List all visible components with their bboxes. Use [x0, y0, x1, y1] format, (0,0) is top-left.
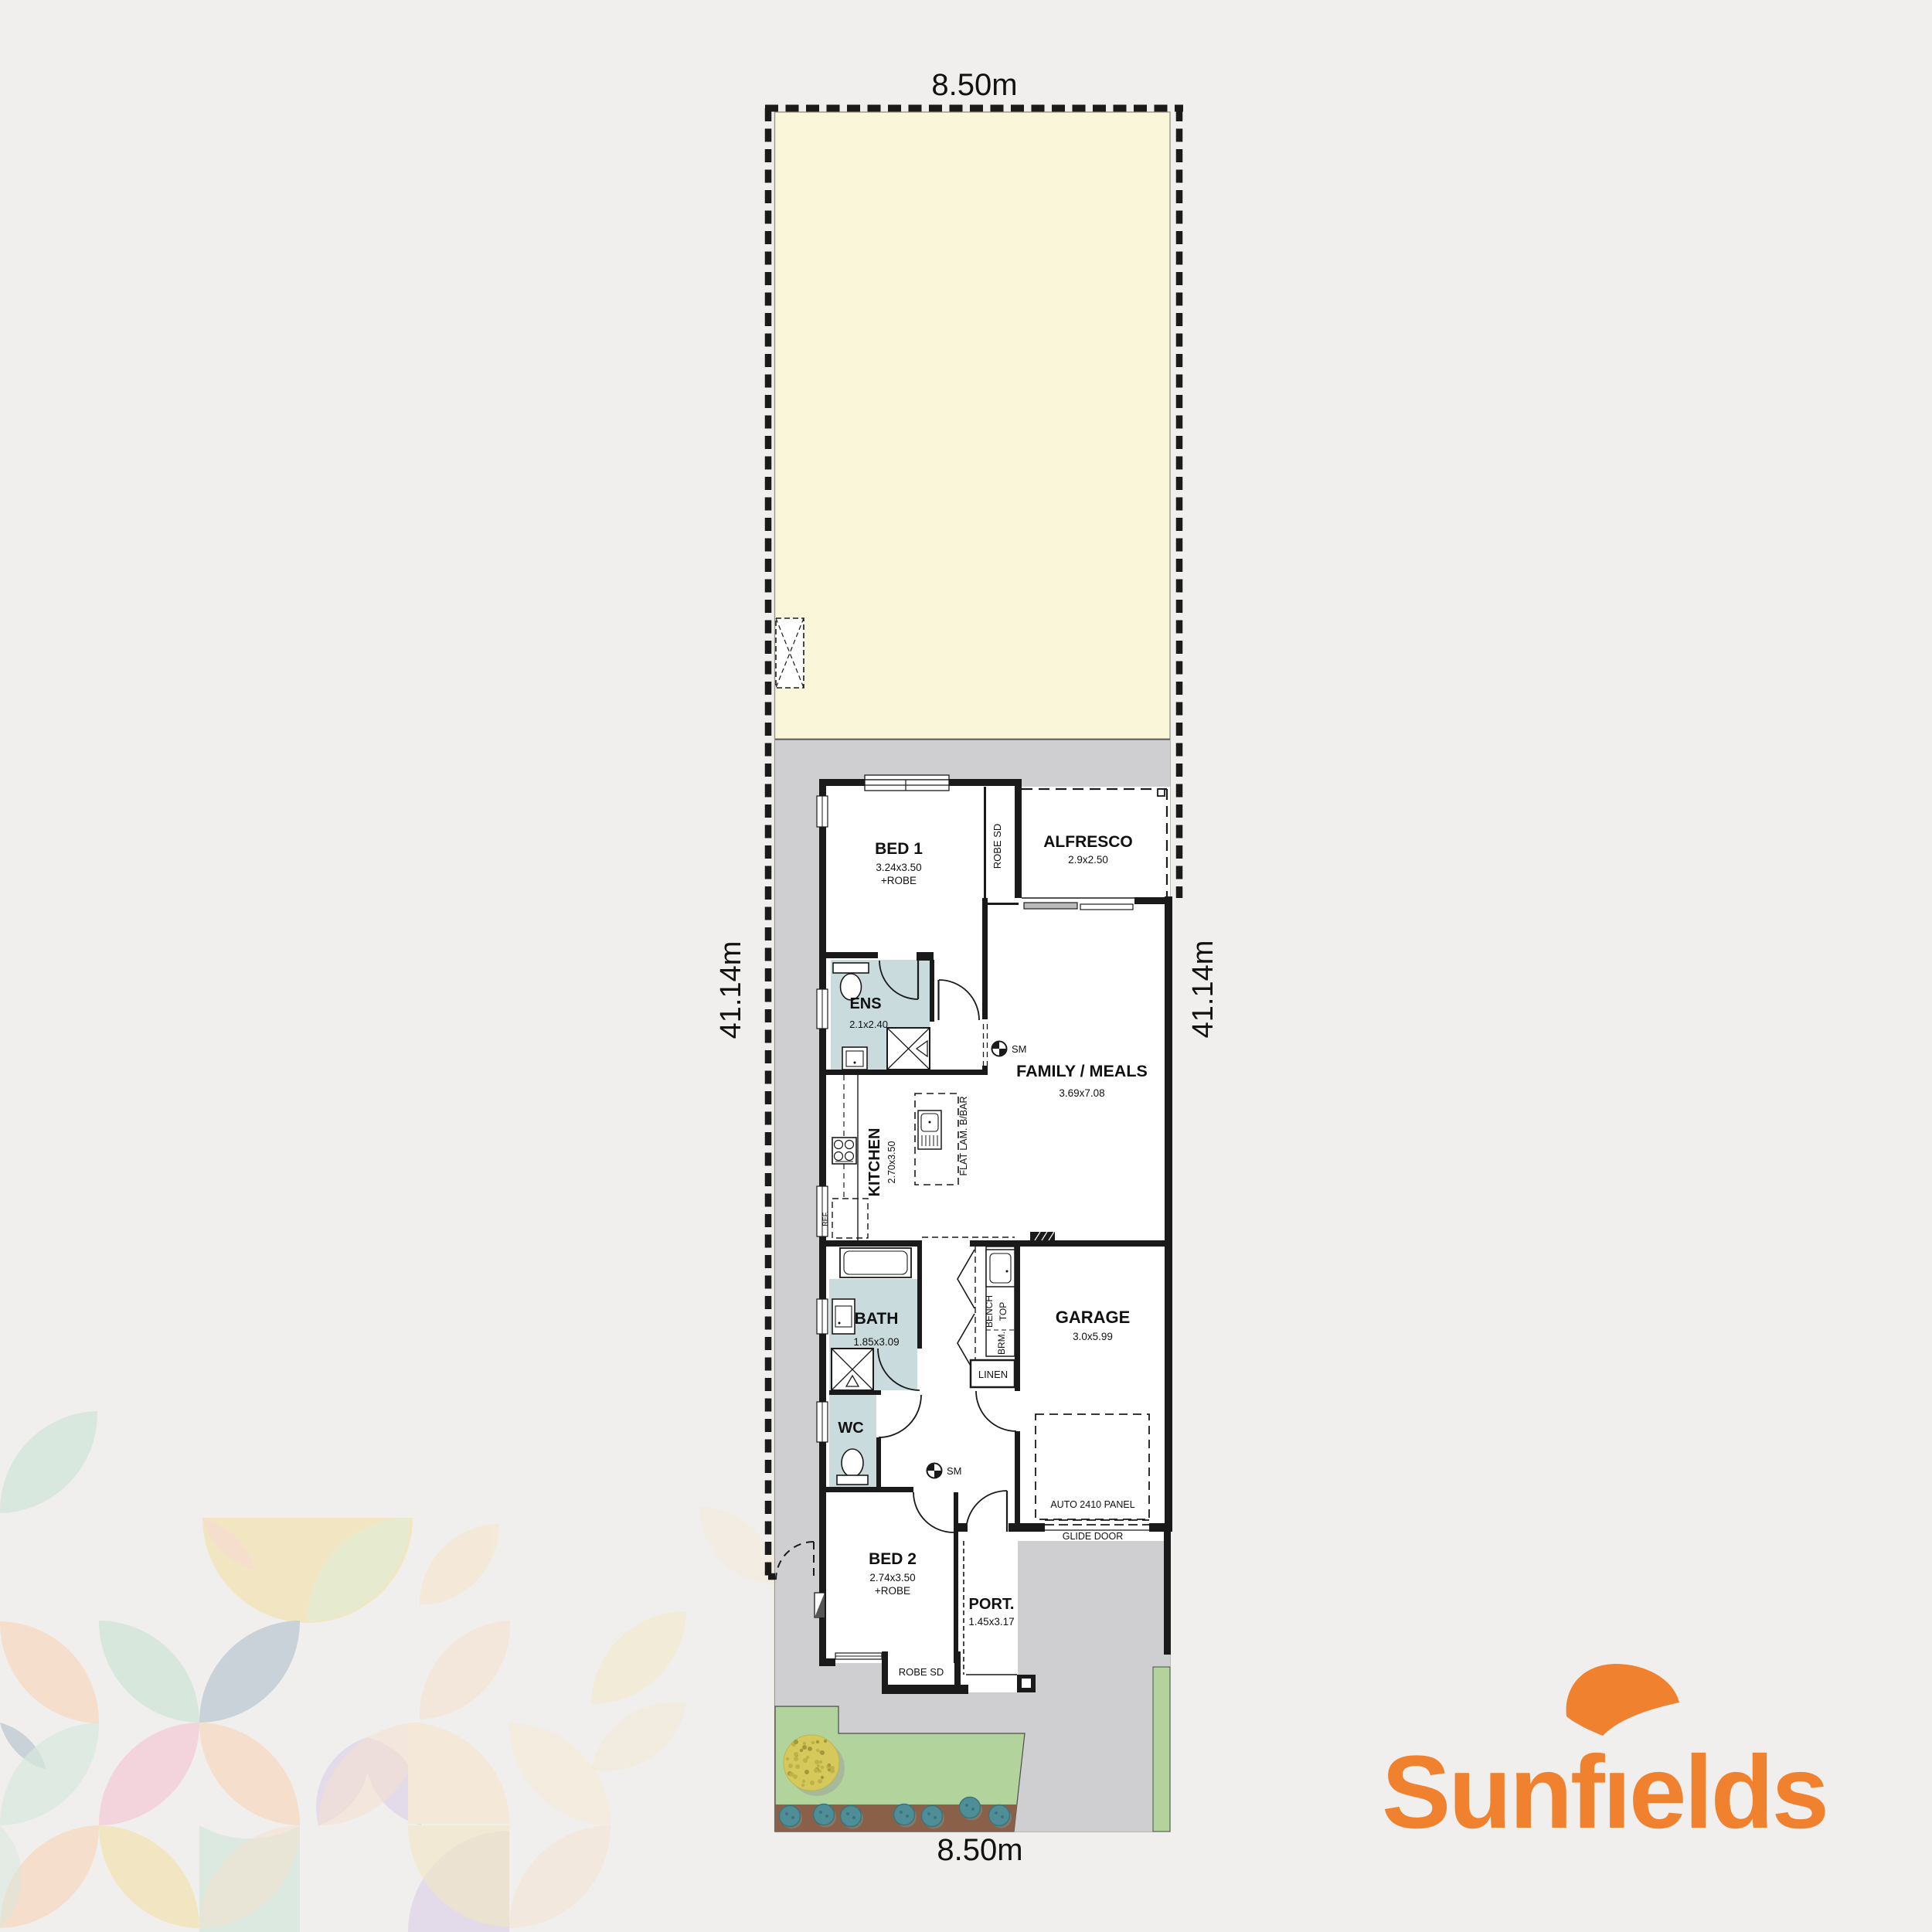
svg-text:+ROBE: +ROBE [875, 1585, 910, 1597]
svg-text:BENCH: BENCH [984, 1295, 995, 1328]
svg-text:2.1x2.40: 2.1x2.40 [849, 1019, 888, 1030]
svg-text:2.9x2.50: 2.9x2.50 [1068, 854, 1108, 866]
svg-text:FLAT LAM. B/BAR: FLAT LAM. B/BAR [958, 1096, 969, 1175]
svg-text:TOP: TOP [998, 1302, 1009, 1321]
svg-text:SM: SM [947, 1465, 962, 1477]
svg-text:REF.: REF. [821, 1211, 829, 1226]
svg-text:41.14m: 41.14m [715, 941, 747, 1039]
svg-text:2.70x3.50: 2.70x3.50 [886, 1141, 897, 1184]
svg-text:BRM.: BRM. [996, 1332, 1007, 1355]
svg-text:FAMILY / MEALS: FAMILY / MEALS [1016, 1062, 1148, 1080]
svg-text:2.74x3.50: 2.74x3.50 [869, 1572, 915, 1583]
svg-text:AUTO 2410 PANEL: AUTO 2410 PANEL [1050, 1499, 1134, 1510]
svg-text:WC: WC [838, 1420, 863, 1437]
svg-text:3.0x5.99: 3.0x5.99 [1073, 1331, 1113, 1342]
svg-text:8.50m: 8.50m [937, 1833, 1022, 1867]
svg-text:PORT.: PORT. [969, 1596, 1015, 1613]
svg-text:GARAGE: GARAGE [1056, 1308, 1131, 1327]
svg-text:1.85x3.09: 1.85x3.09 [853, 1336, 899, 1348]
svg-text:BATH: BATH [855, 1310, 899, 1328]
svg-text:BED 2: BED 2 [869, 1550, 917, 1568]
svg-text:Sunfıelds: Sunfıelds [1382, 1735, 1827, 1850]
svg-text:3.24x3.50: 3.24x3.50 [876, 862, 921, 873]
svg-text:8.50m: 8.50m [931, 68, 1017, 102]
svg-text:ROBE SD: ROBE SD [992, 824, 1003, 869]
svg-text:ENS: ENS [849, 995, 881, 1012]
svg-text:ALFRESCO: ALFRESCO [1043, 833, 1133, 851]
svg-text:GLIDE DOOR: GLIDE DOOR [1063, 1531, 1124, 1542]
svg-text:1.45x3.17: 1.45x3.17 [968, 1616, 1014, 1628]
svg-text:+ROBE: +ROBE [881, 875, 917, 886]
svg-text:SM: SM [1012, 1043, 1027, 1055]
svg-text:BED 1: BED 1 [875, 840, 923, 858]
svg-text:LINEN: LINEN [978, 1369, 1008, 1380]
svg-text:3.69x7.08: 3.69x7.08 [1059, 1087, 1104, 1099]
svg-text:KITCHEN: KITCHEN [866, 1128, 883, 1197]
svg-text:ROBE SD: ROBE SD [899, 1666, 944, 1678]
svg-text:41.14m: 41.14m [1187, 940, 1219, 1039]
